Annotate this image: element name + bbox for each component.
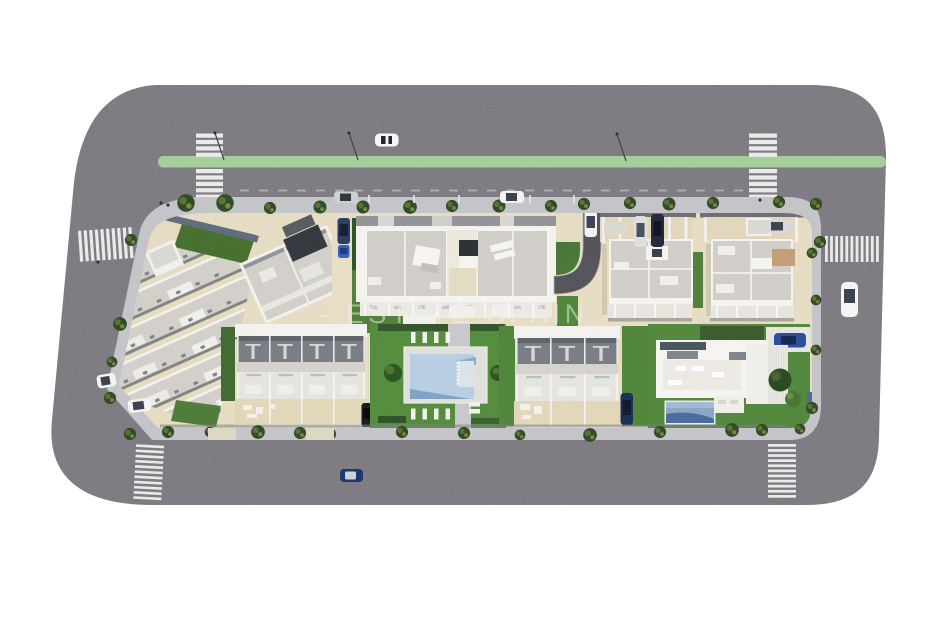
svg-text:- ESTATE SPAIN -: - ESTATE SPAIN - xyxy=(320,299,614,329)
